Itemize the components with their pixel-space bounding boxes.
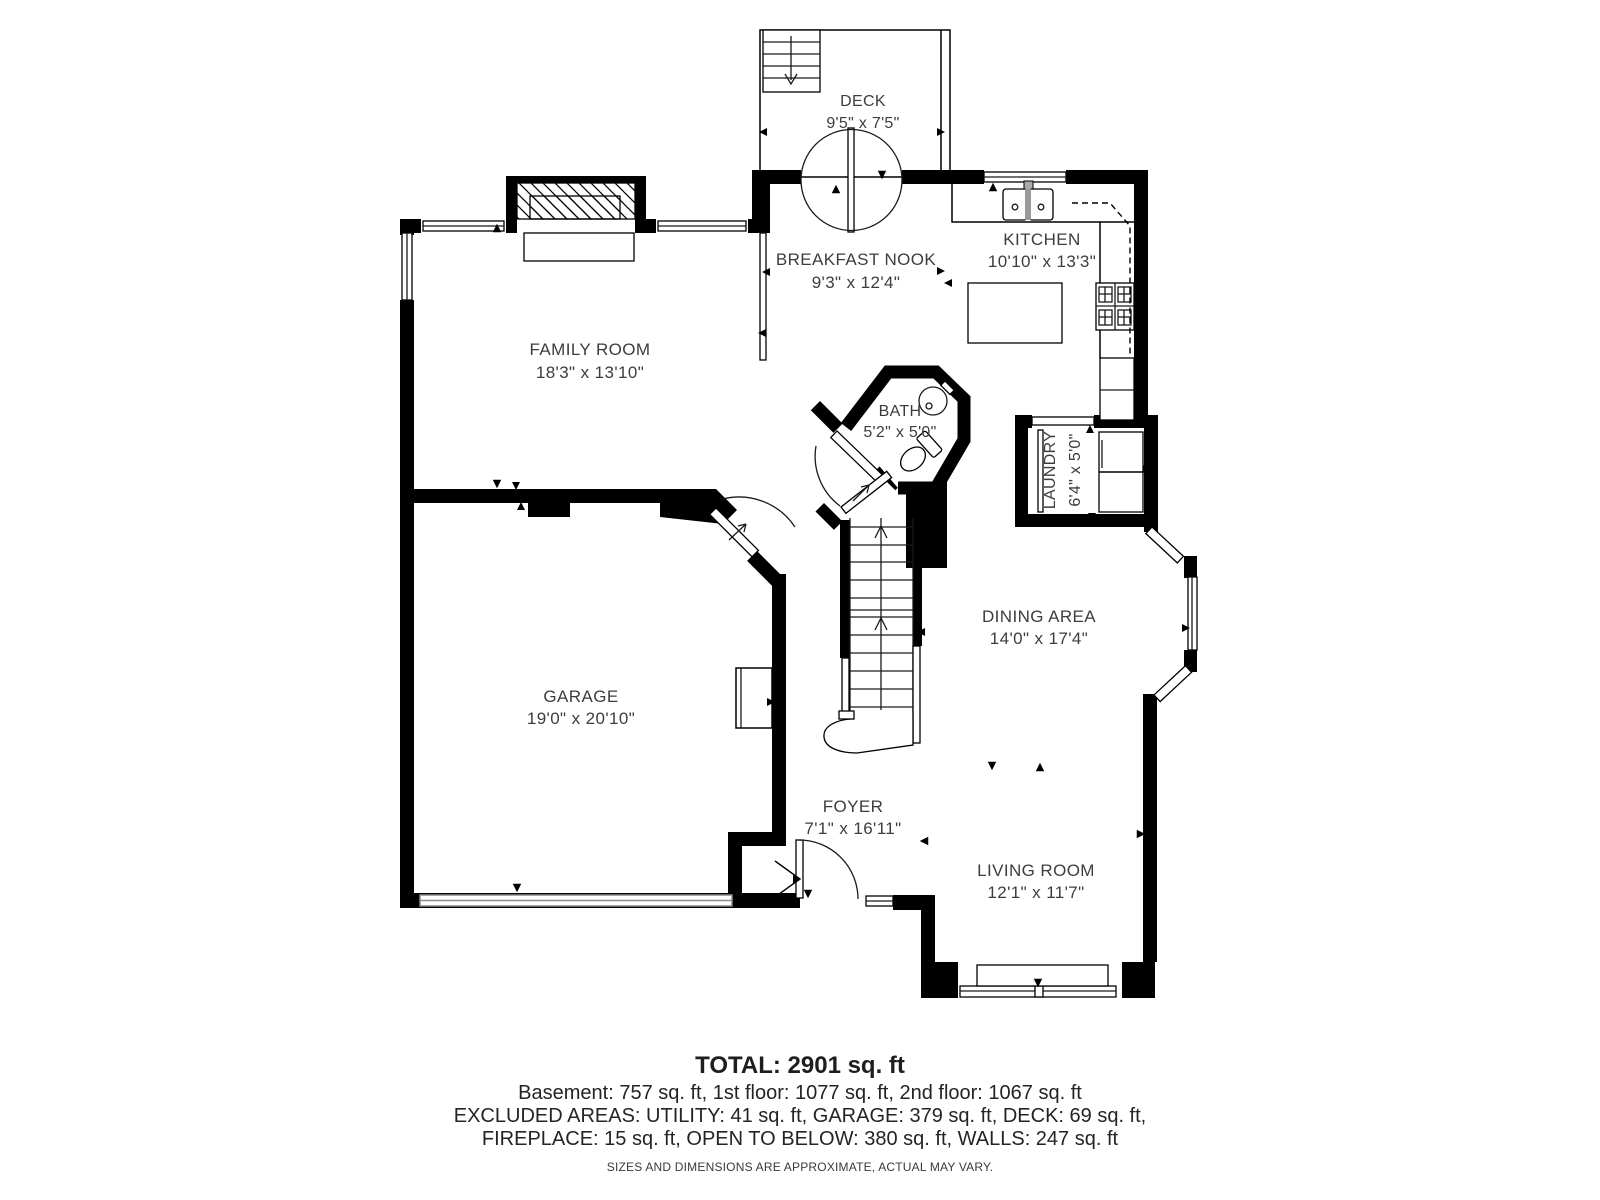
- deck-dims: 9'5" x 7'5": [826, 115, 899, 132]
- hearth: [524, 233, 634, 261]
- bath-dims: 5'2" x 5'0": [863, 424, 936, 441]
- garage-vehicle-door: [420, 895, 732, 906]
- kitchen-island: [968, 283, 1062, 343]
- floor-plan-page: DECK 9'5" x 7'5" BREAKFAST NOOK 9'3" x 1…: [0, 0, 1600, 1200]
- foyer-elements: [775, 840, 858, 899]
- family-room-window-top-right: [658, 221, 746, 231]
- garage-dims: 19'0" x 20'10": [527, 709, 635, 728]
- firebox: [530, 196, 620, 219]
- breakfast-nook-dims: 9'3" x 12'4": [812, 273, 901, 292]
- kitchen-sink-icon: [1003, 181, 1053, 220]
- dining-bay-window-middle: [1188, 577, 1197, 650]
- excluded-areas-line1: EXCLUDED AREAS: UTILITY: 41 sq. ft, GARA…: [454, 1105, 1146, 1127]
- garage-shelf: [736, 668, 772, 728]
- family-room-window-left: [402, 233, 412, 300]
- dining-bay-window-bottom: [1154, 666, 1192, 702]
- window-seat: [977, 965, 1108, 986]
- nook-half-wall: [760, 233, 766, 360]
- kitchen-dims: 10'10" x 13'3": [988, 252, 1096, 271]
- stair-curved-base: [824, 713, 913, 753]
- landing-wall: [841, 471, 892, 513]
- kitchen-fixtures: [952, 181, 1134, 420]
- family-room-window-top-left: [423, 221, 504, 231]
- floor-plan-svg: DECK 9'5" x 7'5" BREAKFAST NOOK 9'3" x 1…: [0, 0, 1600, 1200]
- front-door-leaf: [796, 840, 803, 898]
- dining-area-dims: 14'0" x 17'4": [990, 629, 1088, 648]
- laundry-doorway: [1032, 417, 1094, 425]
- garage-entry-door: [710, 508, 759, 557]
- bath-door-arc: [815, 446, 840, 506]
- stove-icon: [1096, 283, 1134, 330]
- deck-label: DECK: [840, 93, 886, 110]
- total-area-text: TOTAL: 2901 sq. ft: [695, 1052, 905, 1079]
- deck-stairs: [763, 30, 820, 92]
- french-doors: [801, 128, 902, 232]
- washer-dryer-icon: [1099, 432, 1143, 512]
- disclaimer-text: SIZES AND DIMENSIONS ARE APPROXIMATE, AC…: [607, 1160, 993, 1174]
- upper-cabinets-dashed: [1072, 203, 1130, 358]
- breakfast-nook-label: BREAKFAST NOOK: [776, 250, 936, 269]
- dining-area-label: DINING AREA: [982, 607, 1096, 626]
- laundry-label: LAUNDRY: [1042, 431, 1059, 509]
- living-room-dims: 12'1" x 11'7": [987, 883, 1084, 902]
- garage-label: GARAGE: [543, 687, 618, 706]
- stairs: [824, 518, 920, 753]
- excluded-areas-line2: FIREPLACE: 15 sq. ft, OPEN TO BELOW: 380…: [482, 1128, 1119, 1150]
- living-room-label: LIVING ROOM: [977, 861, 1095, 880]
- fireplace: [506, 176, 646, 261]
- dining-bay-window-top: [1146, 527, 1184, 563]
- family-room-label: FAMILY ROOM: [530, 340, 651, 359]
- bath-label: BATH: [879, 403, 922, 420]
- floor-areas-text: Basement: 757 sq. ft, 1st floor: 1077 sq…: [518, 1082, 1082, 1104]
- kitchen-label: KITCHEN: [1003, 230, 1080, 249]
- family-room-dims: 18'3" x 13'10": [536, 363, 644, 382]
- foyer-dims: 7'1" x 16'11": [804, 819, 901, 838]
- laundry-dims: 6'4" x 5'0": [1067, 433, 1084, 506]
- foyer-sidelight-window: [866, 896, 893, 906]
- summary-block: TOTAL: 2901 sq. ft Basement: 757 sq. ft,…: [454, 1052, 1146, 1174]
- kitchen-base-cabinet: [1100, 358, 1134, 420]
- foyer-label: FOYER: [823, 797, 884, 816]
